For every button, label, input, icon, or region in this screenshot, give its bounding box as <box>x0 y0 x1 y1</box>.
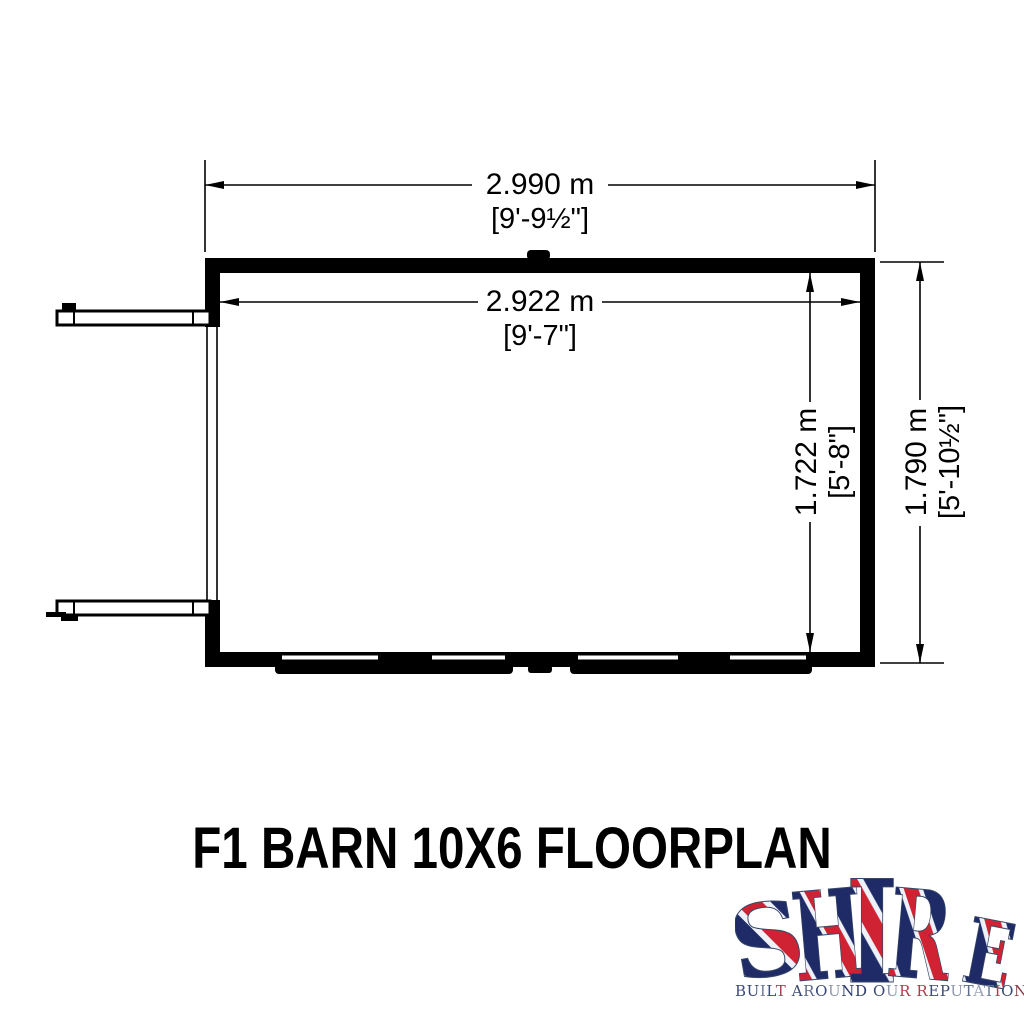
floorplan-page: 2.990 m [9'-9½"] 2.922 m [9'-7"] 1.722 m… <box>0 0 1024 1024</box>
door-leaf-top <box>57 303 210 325</box>
outer-width-imperial: [9'-9½"] <box>491 203 589 235</box>
wall-top <box>205 258 875 273</box>
bottom-skid-left <box>275 663 513 674</box>
door-leaf-bottom <box>46 601 210 621</box>
logo-tagline: BUILT AROUND OUR REPUTATION <box>735 982 1024 1000</box>
door-opening <box>207 327 217 600</box>
inner-depth-metric: 1.722 m <box>790 408 823 516</box>
bottom-skid-right <box>570 663 812 674</box>
floorplan-drawing: 2.990 m [9'-9½"] 2.922 m [9'-7"] 1.722 m… <box>0 0 1024 780</box>
arrowhead-right <box>856 181 875 189</box>
inner-depth-imperial: [5'-8"] <box>824 425 856 499</box>
inner-width-metric: 2.922 m <box>486 285 594 318</box>
inner-width-imperial: [9'-7"] <box>503 320 577 352</box>
outer-width-metric: 2.990 m <box>486 168 594 201</box>
outer-depth-imperial: [5'-10½"] <box>934 405 966 519</box>
shire-logo: S H I R E BUILT AROUND OUR REPUTATION <box>735 878 1024 1010</box>
arrowhead-up <box>916 262 924 281</box>
arrowhead-down <box>806 633 814 652</box>
door-handle-top <box>62 303 76 312</box>
wall-right <box>860 258 875 667</box>
arrowhead-down <box>916 644 924 663</box>
arrowhead-up <box>806 273 814 292</box>
arrowhead-right <box>841 298 860 306</box>
page-title: F1 BARN 10X6 FLOORPLAN <box>92 818 932 880</box>
arrowhead-left <box>205 181 224 189</box>
outer-depth-metric: 1.790 m <box>900 408 933 516</box>
roof-apex-lug <box>527 250 550 260</box>
arrowhead-left <box>220 298 239 306</box>
bottom-center-lug <box>528 665 552 673</box>
